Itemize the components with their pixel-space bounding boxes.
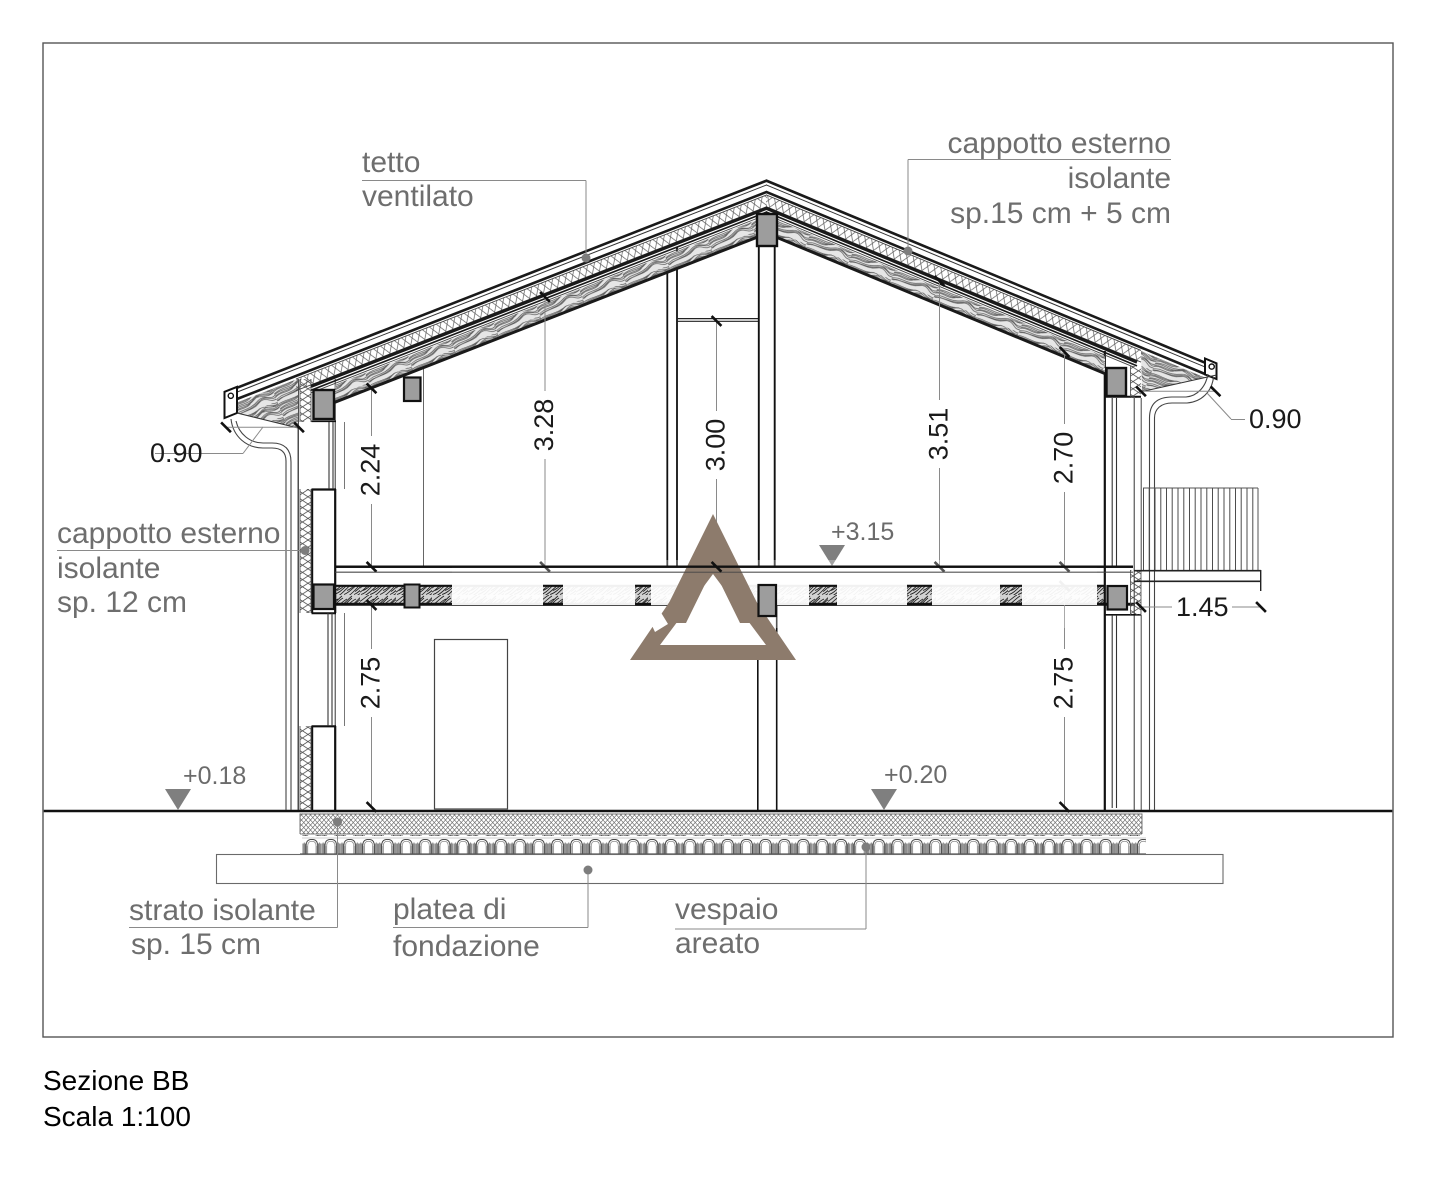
svg-text:+0.18: +0.18	[183, 762, 246, 790]
svg-text:1.45: 1.45	[1176, 592, 1229, 622]
svg-text:Sezione BB: Sezione BB	[43, 1065, 189, 1096]
svg-text:+3.15: +3.15	[831, 518, 894, 546]
svg-text:0.90: 0.90	[150, 438, 203, 468]
svg-text:sp. 15 cm: sp. 15 cm	[131, 928, 261, 961]
svg-text:2.24: 2.24	[356, 444, 386, 497]
svg-text:sp. 12 cm: sp. 12 cm	[57, 586, 187, 619]
svg-text:ventilato: ventilato	[362, 180, 474, 213]
svg-text:2.75: 2.75	[1049, 657, 1079, 710]
svg-text:isolante: isolante	[57, 552, 160, 585]
svg-text:3.28: 3.28	[529, 399, 559, 452]
svg-text:2.70: 2.70	[1049, 432, 1079, 485]
svg-text:tetto: tetto	[362, 146, 420, 179]
svg-text:sp.15 cm + 5 cm: sp.15 cm + 5 cm	[950, 197, 1171, 230]
svg-text:vespaio: vespaio	[675, 893, 778, 926]
svg-text:cappotto esterno: cappotto esterno	[948, 127, 1172, 160]
svg-text:isolante: isolante	[1068, 162, 1171, 195]
svg-text:fondazione: fondazione	[393, 930, 540, 963]
svg-text:Scala 1:100: Scala 1:100	[43, 1101, 191, 1132]
svg-text:strato isolante: strato isolante	[129, 894, 316, 927]
svg-text:3.00: 3.00	[701, 419, 731, 472]
svg-text:+0.20: +0.20	[884, 761, 947, 789]
svg-text:platea di: platea di	[393, 893, 506, 926]
svg-text:2.75: 2.75	[356, 657, 386, 710]
svg-text:0.90: 0.90	[1249, 404, 1302, 434]
svg-text:areato: areato	[675, 927, 760, 960]
svg-text:cappotto esterno: cappotto esterno	[57, 517, 281, 550]
svg-text:3.51: 3.51	[924, 408, 954, 461]
